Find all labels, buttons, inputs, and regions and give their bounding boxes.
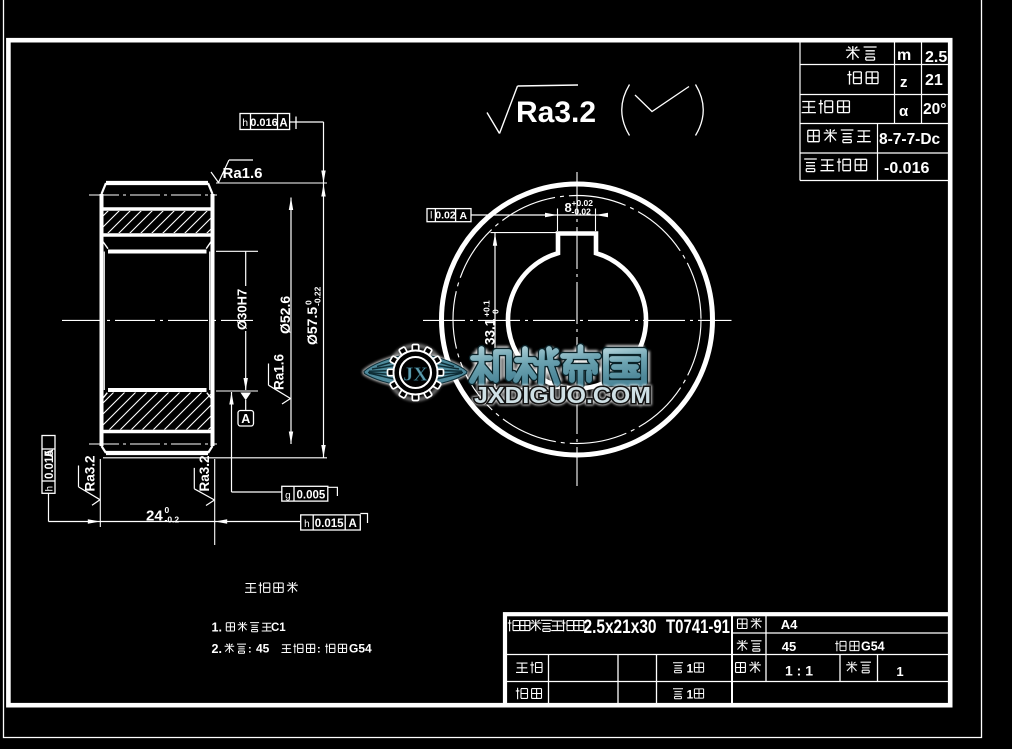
svg-text:0.005: 0.005 [297,490,326,502]
svg-text:A: A [460,210,468,222]
svg-text:0.015: 0.015 [315,518,344,530]
svg-text:JXDIGUO.COM: JXDIGUO.COM [474,382,651,408]
svg-text:45: 45 [256,642,270,656]
svg-text:-0.016: -0.016 [884,160,929,177]
svg-text:Ø57.5: Ø57.5 [304,307,320,345]
svg-text:20°: 20° [923,101,946,118]
svg-text:0.016: 0.016 [250,117,278,129]
svg-text:-0.2: -0.2 [165,515,180,525]
svg-text:1: 1 [687,662,694,676]
svg-text:h: h [304,519,310,530]
svg-text:A: A [241,412,250,426]
svg-text:Ø52.6: Ø52.6 [277,296,293,334]
svg-text:Ø30H7: Ø30H7 [235,289,250,330]
svg-text:-0.02: -0.02 [572,207,592,217]
svg-text:JX: JX [403,364,428,386]
svg-text:A: A [44,449,56,457]
svg-text:8-7-7-Dc: 8-7-7-Dc [879,131,941,148]
svg-text:0.02: 0.02 [435,210,456,222]
svg-text:Ra3.2: Ra3.2 [83,455,98,491]
svg-text:1: 1 [687,688,694,702]
svg-text:T0741-91: T0741-91 [666,617,730,638]
svg-text:2.: 2. [212,642,222,656]
svg-text:1.: 1. [212,621,222,635]
svg-text:h: h [44,486,55,492]
svg-text:33.1: 33.1 [483,318,498,345]
svg-text:Ra1.6: Ra1.6 [272,353,287,390]
svg-text:z: z [900,74,908,91]
svg-text::: : [248,644,252,656]
svg-text:1: 1 [896,664,903,679]
svg-text:Ra3.2: Ra3.2 [516,96,596,129]
svg-text:g: g [285,491,291,502]
svg-text:2.5x21x30: 2.5x21x30 [584,617,657,638]
svg-text:l: l [430,211,432,222]
svg-text:Ra1.6: Ra1.6 [223,165,263,182]
svg-text:A: A [349,518,357,530]
svg-text:A4: A4 [781,617,798,632]
svg-text:2.5: 2.5 [925,49,947,66]
svg-text:α: α [899,103,909,120]
svg-text:0: 0 [491,309,501,314]
svg-text:24: 24 [146,508,163,525]
svg-text:Ra3.2: Ra3.2 [197,455,212,491]
svg-text:m: m [897,47,911,64]
svg-text:G54: G54 [349,642,372,656]
svg-text::: : [317,644,321,656]
svg-text:h: h [242,117,248,129]
svg-text:1 : 1: 1 : 1 [785,663,813,679]
svg-text:0: 0 [165,505,170,515]
svg-text:21: 21 [925,72,943,89]
svg-text:A: A [279,118,287,130]
svg-text:45: 45 [782,639,796,654]
svg-text:C1: C1 [271,622,286,634]
svg-text:G54: G54 [861,640,885,654]
svg-text:-0.22: -0.22 [313,286,323,306]
